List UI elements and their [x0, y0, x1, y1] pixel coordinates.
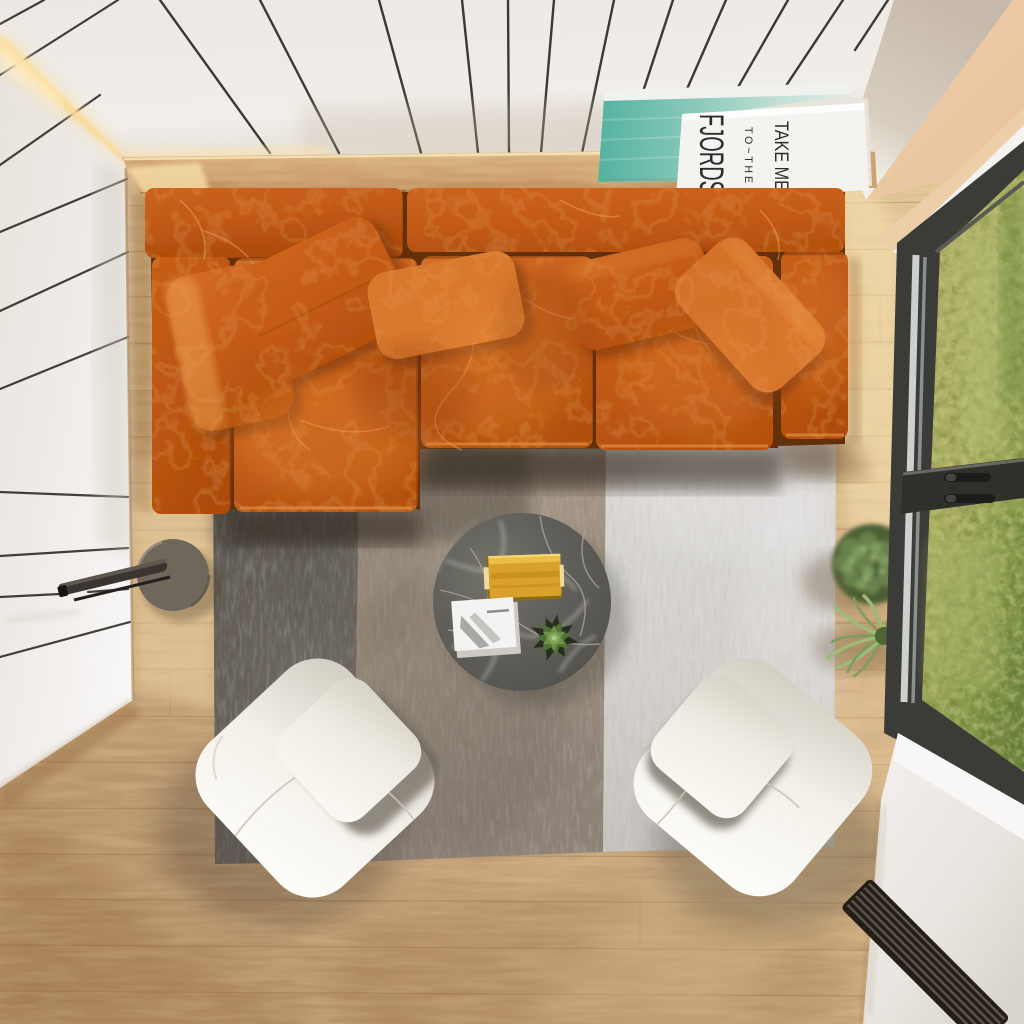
svg-text:TAKE ME: TAKE ME	[770, 121, 791, 191]
svg-text:FJORDS: FJORDS	[692, 114, 730, 194]
svg-text:T O ~ T H E: T O ~ T H E	[742, 127, 754, 183]
